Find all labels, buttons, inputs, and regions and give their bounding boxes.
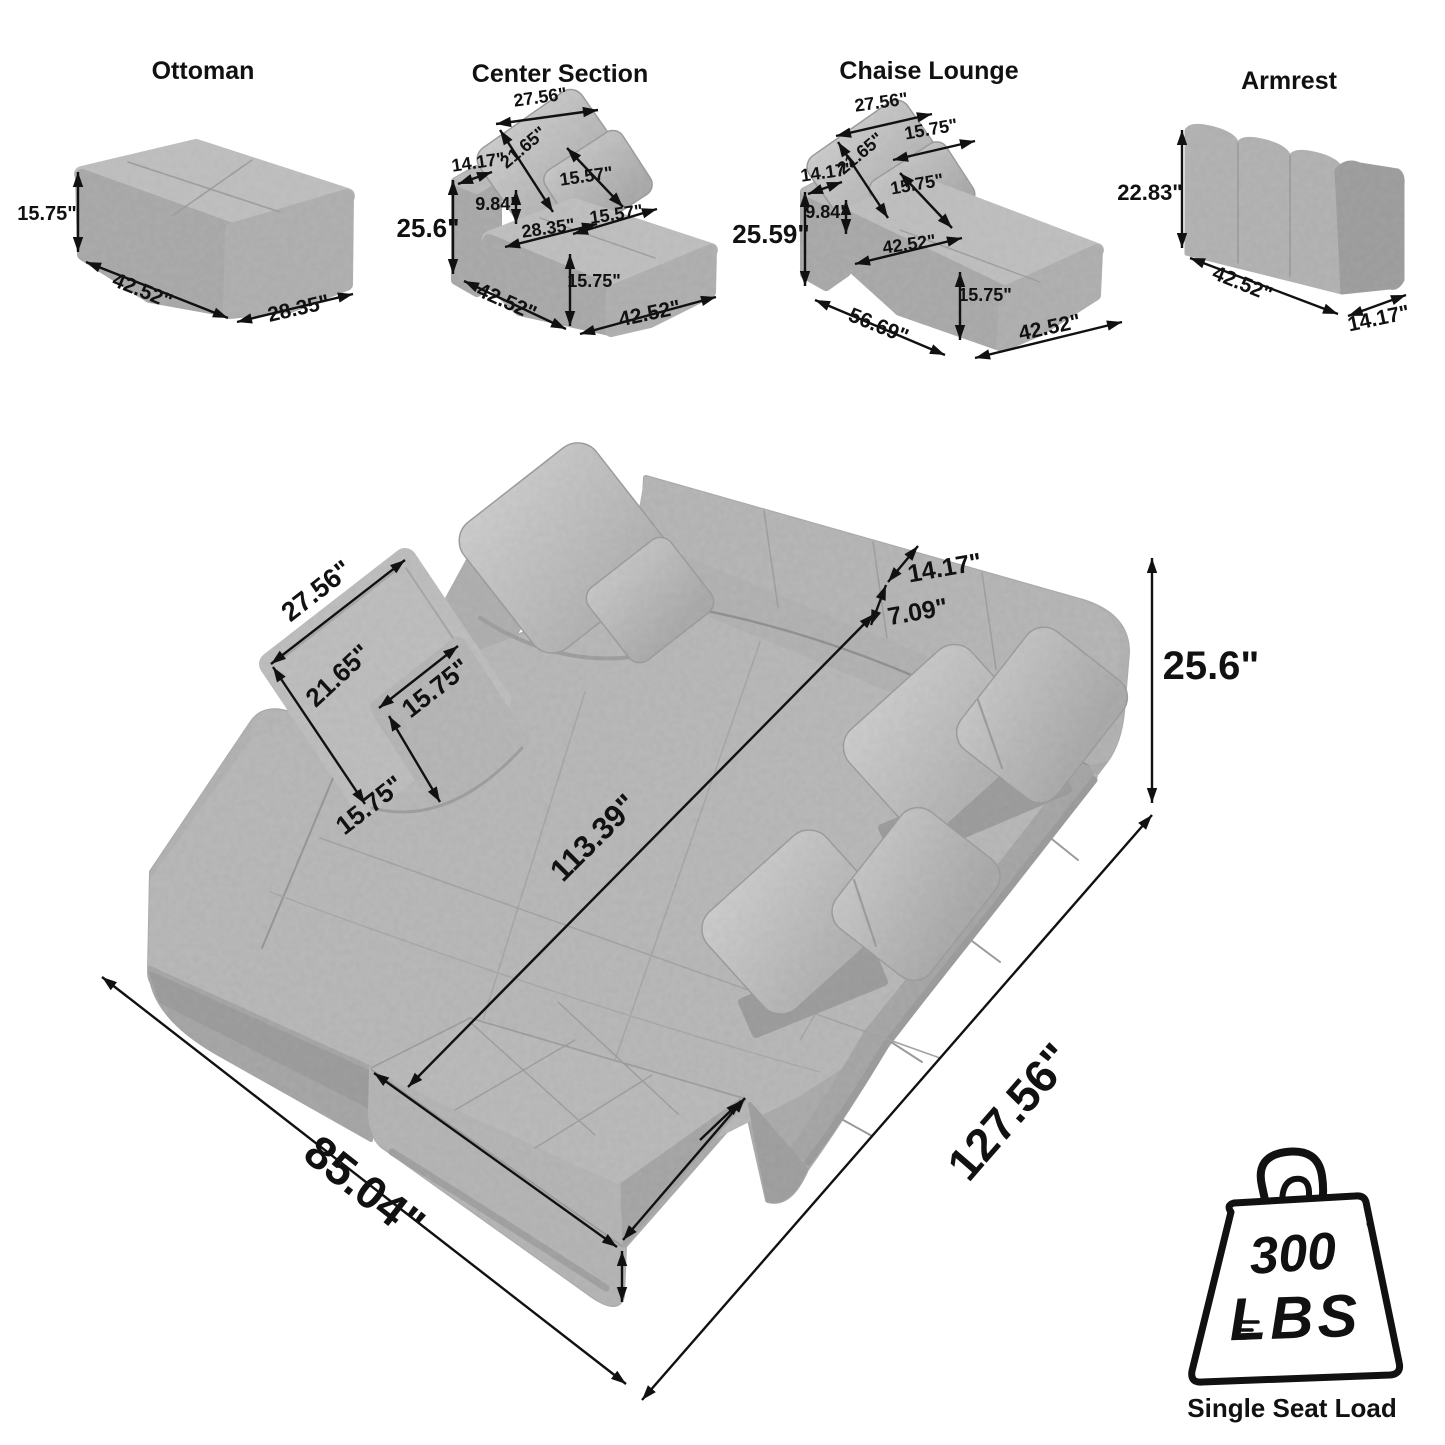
svg-text:25.6": 25.6" [397,213,460,243]
svg-text:Armrest: Armrest [1241,67,1338,95]
svg-text:15.75": 15.75" [567,271,621,291]
svg-text:9.84": 9.84" [805,202,849,222]
svg-text:Single Seat Load: Single Seat Load [1187,1393,1397,1423]
svg-text:Ottoman: Ottoman [152,57,255,85]
svg-text:15.75": 15.75" [958,285,1012,305]
svg-text:25.59": 25.59" [732,219,809,249]
svg-text:Chaise Lounge: Chaise Lounge [839,57,1018,85]
svg-text:9.84": 9.84" [475,194,519,214]
svg-text:22.83": 22.83" [1117,180,1182,205]
svg-text:25.6": 25.6" [1163,644,1260,688]
svg-text:15.75": 15.75" [17,203,77,225]
svg-text:300: 300 [1248,1222,1339,1286]
svg-text:LBS: LBS [1228,1282,1362,1354]
